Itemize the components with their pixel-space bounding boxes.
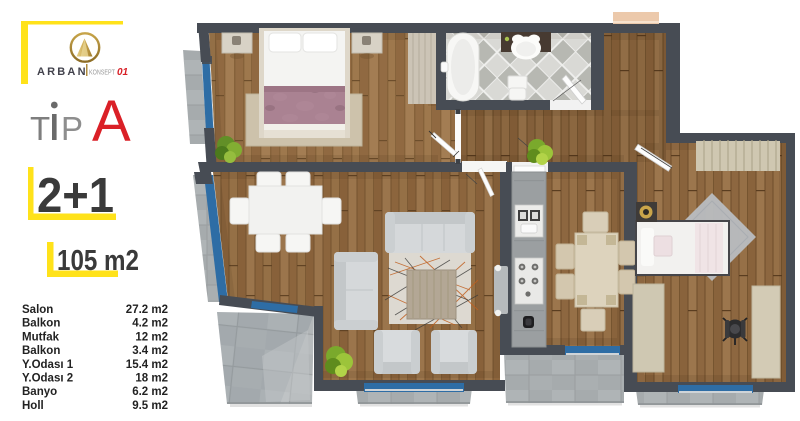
svg-text:Salon: Salon — [22, 304, 53, 316]
svg-text:Balkon: Balkon — [22, 345, 60, 357]
svg-text:9.5 m2: 9.5 m2 — [132, 400, 168, 412]
svg-text:27.2 m2: 27.2 m2 — [126, 304, 168, 316]
svg-text:6.2 m2: 6.2 m2 — [132, 386, 168, 398]
svg-text:4.2 m2: 4.2 m2 — [132, 318, 168, 330]
svg-text:18 m2: 18 m2 — [135, 373, 168, 385]
svg-text:Holl: Holl — [22, 400, 44, 412]
svg-text:ARBAN: ARBAN — [37, 66, 88, 78]
svg-text:Balkon: Balkon — [22, 318, 60, 330]
svg-text:3.4 m2: 3.4 m2 — [132, 345, 168, 357]
svg-text:A: A — [92, 89, 131, 154]
svg-text:P: P — [61, 110, 83, 147]
svg-text:Mutfak: Mutfak — [22, 331, 60, 343]
svg-text:Y.Odası 1: Y.Odası 1 — [22, 359, 74, 371]
svg-text:12 m2: 12 m2 — [135, 331, 168, 343]
svg-text:01: 01 — [117, 67, 129, 78]
svg-text:KONSEPT: KONSEPT — [89, 68, 115, 77]
svg-text:Banyo: Banyo — [22, 386, 57, 398]
svg-text:T: T — [30, 110, 50, 147]
svg-text:Y.Odası 2: Y.Odası 2 — [22, 373, 73, 385]
svg-text:15.4 m2: 15.4 m2 — [126, 359, 168, 371]
